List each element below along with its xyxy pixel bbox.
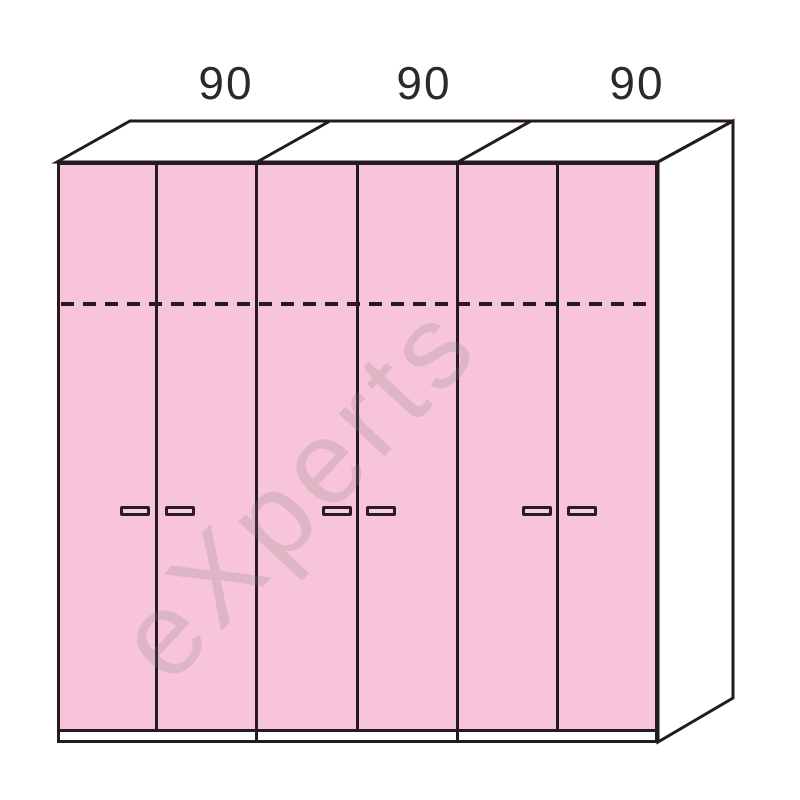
door-handle: [366, 506, 396, 516]
door-divider: [155, 164, 158, 730]
door-divider: [356, 164, 359, 730]
plinth-base: [57, 732, 658, 743]
door-handle: [322, 506, 352, 516]
section-divider: [255, 164, 258, 741]
dashed-shelf-line: [61, 302, 655, 306]
door-handle: [165, 506, 195, 516]
section-divider: [456, 164, 459, 741]
wardrobe-drawing-canvas: 90 90 90 eXperts: [0, 0, 800, 800]
dimension-label: 90: [198, 60, 253, 106]
door-handle: [120, 506, 150, 516]
door-divider: [556, 164, 559, 730]
right-side-face: [658, 121, 733, 742]
door-handle: [522, 506, 552, 516]
top-face: [57, 121, 733, 162]
dimension-label: 90: [609, 60, 664, 106]
door-handle: [567, 506, 597, 516]
dimension-label: 90: [396, 60, 451, 106]
